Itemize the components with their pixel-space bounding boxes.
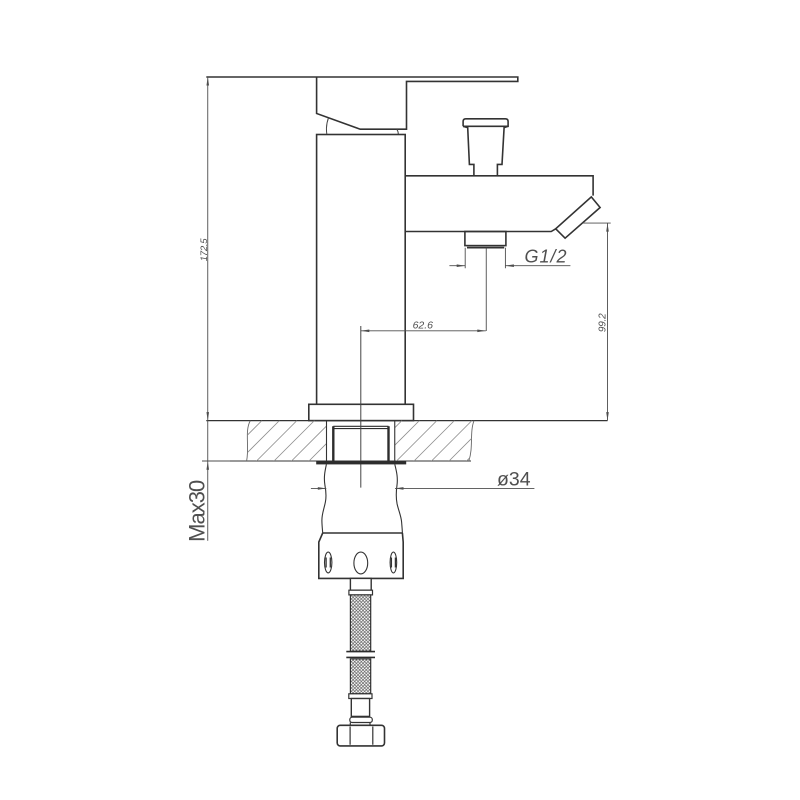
svg-text:ø34: ø34 [497,469,531,491]
svg-text:G1/2: G1/2 [524,246,567,266]
svg-text:Max30: Max30 [184,480,209,542]
svg-text:172.5: 172.5 [199,238,210,261]
svg-text:62.6: 62.6 [413,320,434,332]
svg-text:99.2: 99.2 [597,313,608,332]
